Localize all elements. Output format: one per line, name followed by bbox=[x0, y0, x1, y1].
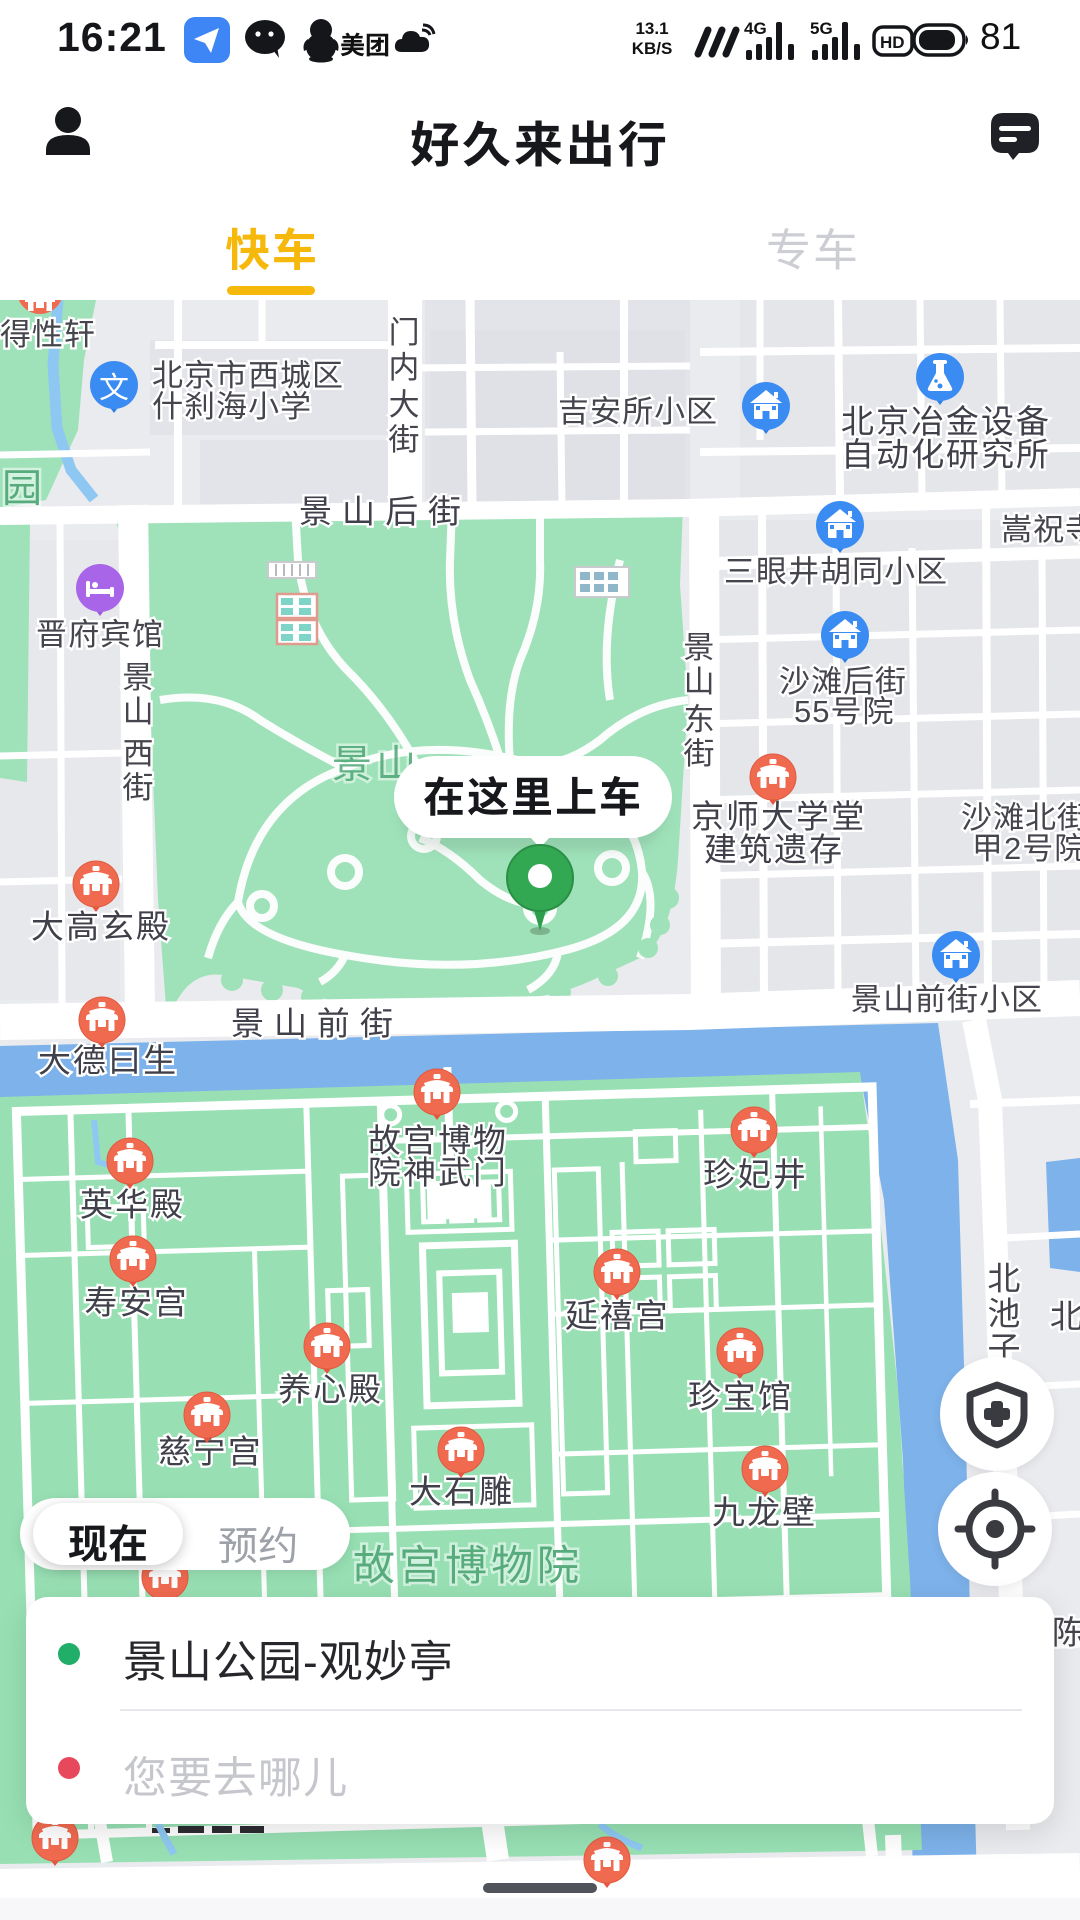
svg-text:景山后街: 景山后街 bbox=[299, 485, 471, 533]
svg-text:HD: HD bbox=[880, 28, 905, 53]
svg-text:街: 街 bbox=[389, 414, 420, 459]
svg-text:55号院: 55号院 bbox=[794, 686, 894, 731]
svg-text:景山前街小区: 景山前街小区 bbox=[851, 974, 1043, 1019]
svg-text:嵩祝寺: 嵩祝寺 bbox=[1001, 504, 1080, 549]
svg-text:在这里上车: 在这里上车 bbox=[423, 764, 643, 825]
svg-text:4G: 4G bbox=[744, 18, 767, 39]
svg-text:养心殿: 养心殿 bbox=[278, 1363, 383, 1411]
svg-text:山: 山 bbox=[123, 686, 154, 731]
svg-text:陈: 陈 bbox=[1052, 1606, 1080, 1654]
svg-text:三眼井胡同小区: 三眼井胡同小区 bbox=[724, 546, 948, 591]
svg-text:5G: 5G bbox=[810, 18, 833, 39]
svg-text:景山前街: 景山前街 bbox=[231, 997, 403, 1045]
svg-text:建筑遗存: 建筑遗存 bbox=[704, 823, 844, 871]
svg-text:街: 街 bbox=[123, 762, 154, 807]
svg-text:故宫博物院: 故宫博物院 bbox=[353, 1532, 583, 1593]
svg-text:街: 街 bbox=[684, 728, 715, 773]
svg-text:寿安宫: 寿安宫 bbox=[84, 1276, 189, 1324]
svg-text:自动化研究所: 自动化研究所 bbox=[841, 428, 1051, 476]
svg-text:园: 园 bbox=[2, 456, 46, 514]
svg-text:吉安所小区: 吉安所小区 bbox=[558, 386, 718, 431]
svg-text:什刹海小学: 什刹海小学 bbox=[152, 381, 312, 426]
svg-text:北: 北 bbox=[1050, 1290, 1080, 1338]
svg-text:得性轩: 得性轩 bbox=[0, 309, 96, 354]
svg-text:甲2号院: 甲2号院 bbox=[972, 823, 1080, 868]
svg-text:大高玄殿: 大高玄殿 bbox=[31, 900, 171, 948]
svg-text:院神武门: 院神武门 bbox=[368, 1146, 508, 1194]
